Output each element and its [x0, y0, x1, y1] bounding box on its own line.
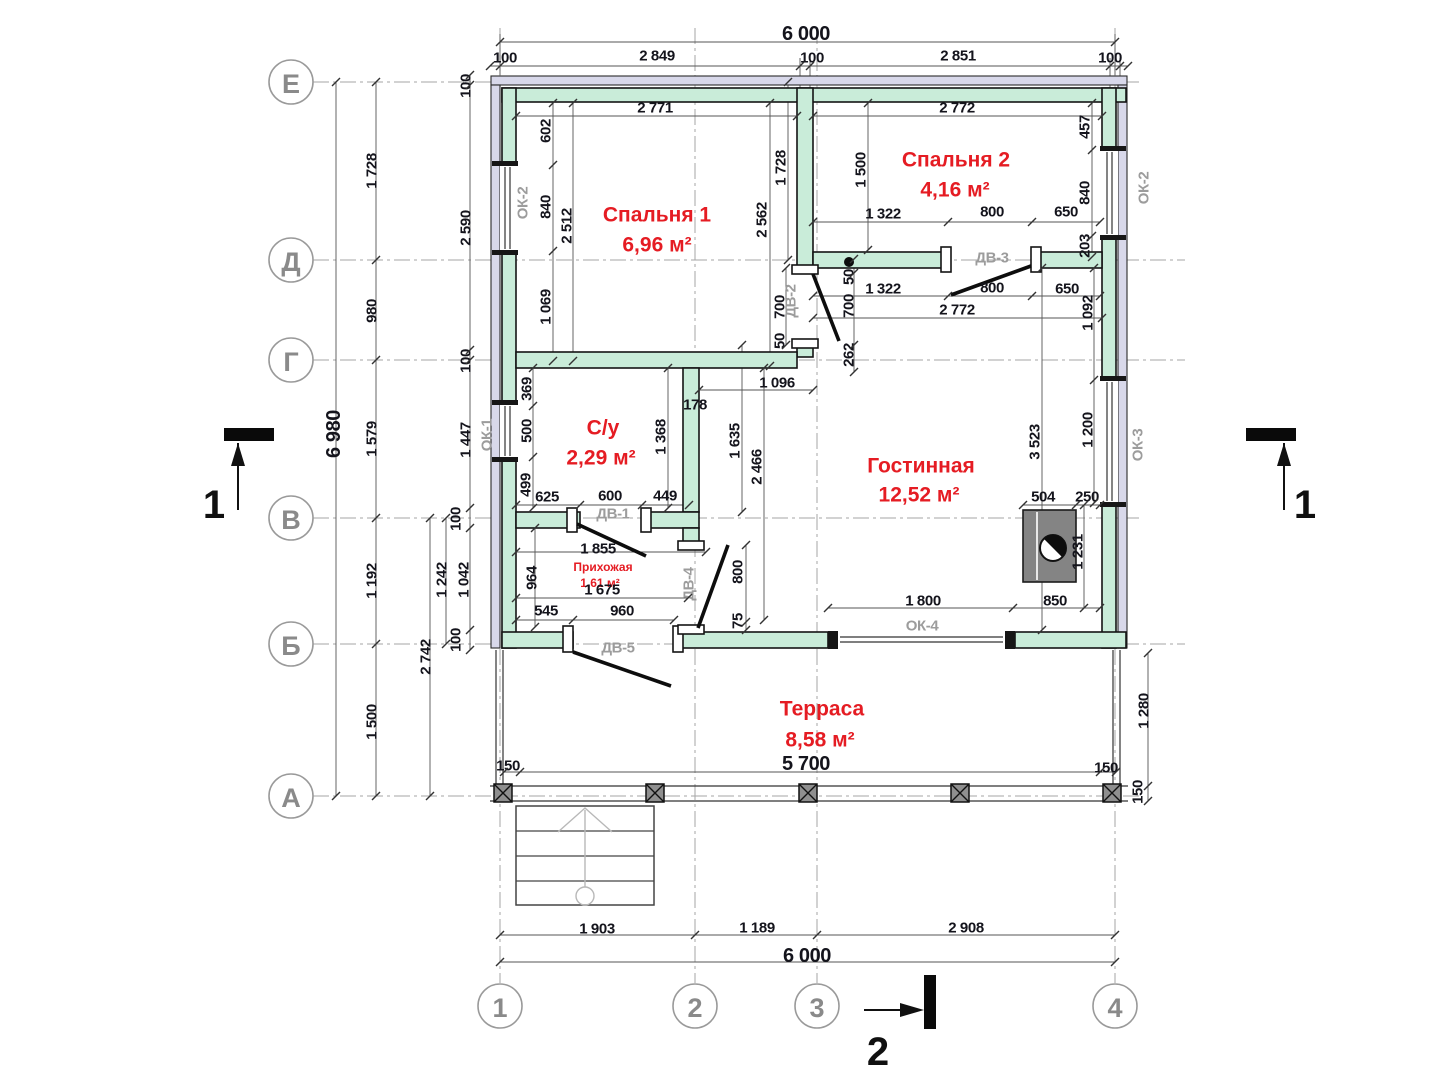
dimension-label: 2 908: [948, 920, 984, 937]
axis-col-1: 1: [478, 984, 522, 1028]
opening-label: ОК-1: [479, 419, 496, 452]
dimension-label: 369: [519, 377, 536, 401]
dimension-label: 650: [1055, 281, 1079, 298]
dimension-label: 1 635: [727, 423, 744, 459]
dimension-label: 1 042: [456, 562, 473, 598]
axis-row-label: Г: [283, 347, 298, 377]
opening-label: ОК-2: [515, 187, 532, 220]
dimension-label: 150: [1130, 780, 1147, 804]
dimension-label: 1 092: [1080, 295, 1097, 331]
terrace-posts: [494, 784, 1121, 802]
dimension-label: 1 192: [364, 563, 381, 599]
dimension-label: 178: [683, 397, 707, 414]
wall-middle-upper: [797, 88, 813, 273]
dimension-label: 100: [458, 349, 475, 373]
floor-plan-canvas: Е Д Г В Б А 1 2 3 4 1 1 2 Спальня 1 6,96…: [0, 0, 1440, 1080]
entry-stairs: [516, 806, 654, 905]
section-1-right-number: 1: [1294, 483, 1316, 527]
dimension-label: 1 189: [739, 920, 775, 937]
dimension-label: 1 231: [1070, 534, 1087, 570]
opening-label: ДВ-1: [596, 506, 629, 523]
dimension-label: 1 096: [759, 375, 795, 392]
room-name-livingroom: Гостинная: [867, 455, 975, 478]
room-area-livingroom: 12,52 м²: [879, 484, 960, 507]
dimension-label: 1 447: [458, 422, 475, 458]
dimension-label: 2 742: [418, 639, 435, 675]
dimension-label: 1 322: [865, 206, 901, 223]
dimension-label: 2 512: [559, 208, 576, 244]
dimension-label: 449: [653, 488, 677, 505]
dimension-label: 499: [518, 473, 535, 497]
dimension-label: 960: [610, 603, 634, 620]
wall-node-dot: [844, 257, 854, 267]
axis-row-d: Д: [269, 238, 313, 282]
dimension-label: 2 849: [639, 48, 675, 65]
stove: [1023, 510, 1076, 582]
dimension-label: 75: [730, 613, 747, 629]
axis-row-label: Е: [282, 69, 300, 99]
wall-su-right: [683, 368, 699, 512]
dimension-label: 850: [1043, 593, 1067, 610]
room-name-hallway: Прихожая: [573, 560, 632, 574]
dimension-label: 6 000: [782, 23, 830, 45]
dimension-label: 2 590: [458, 210, 475, 246]
dimension-label: 1 500: [364, 704, 381, 740]
dimension-label: 1 579: [364, 421, 381, 457]
opening-label: ОК-4: [906, 618, 940, 635]
dimension-label: 100: [458, 74, 475, 98]
dimension-label: 2 466: [749, 449, 766, 485]
dimension-label: 650: [1054, 204, 1078, 221]
dimension-label: 625: [535, 489, 559, 506]
room-name-terrace: Терраса: [780, 698, 865, 721]
dimension-label: 100: [448, 628, 465, 652]
section-1-left-mark: [224, 428, 274, 510]
dimension-label: 2 771: [637, 100, 673, 117]
dimension-label: 1 728: [364, 153, 381, 189]
room-area-terrace: 8,58 м²: [785, 729, 854, 752]
wall-g: [516, 352, 797, 368]
room-area-bedroom1: 6,96 м²: [622, 234, 691, 257]
dimension-label: 1 855: [580, 541, 616, 558]
axis-grid-lines: [313, 28, 1185, 983]
dimension-label: 1 903: [579, 921, 615, 938]
axis-row-v: В: [269, 496, 313, 540]
dimension-label: 964: [524, 565, 541, 590]
dimension-label: 2 772: [939, 302, 975, 319]
axis-row-label: Б: [281, 631, 300, 661]
dimension-label: 500: [519, 419, 536, 443]
wall-d-seg1: [813, 252, 948, 268]
dimension-label: 800: [980, 204, 1004, 221]
floor-plan-drawing: Е Д Г В Б А 1 2 3 4 1 1 2 Спальня 1 6,96…: [0, 0, 1440, 1080]
dimension-label: 100: [493, 50, 517, 67]
room-name-bedroom2: Спальня 2: [902, 149, 1010, 172]
wall-bottom-seg3: [1015, 632, 1126, 648]
dimension-label: 6 000: [783, 945, 831, 967]
axis-col-label: 2: [687, 993, 702, 1023]
axis-col-3: 3: [795, 984, 839, 1028]
dimension-label: 100: [448, 507, 465, 531]
section-1-left-number: 1: [203, 483, 225, 527]
room-area-bedroom2: 4,16 м²: [920, 179, 989, 202]
dimension-label: 1 728: [773, 150, 790, 186]
axis-row-b: Б: [269, 622, 313, 666]
dimension-label: 840: [538, 195, 555, 219]
opening-label: ОК-2: [1136, 172, 1153, 205]
dimension-label: 600: [598, 488, 622, 505]
opening-label: ДВ-3: [975, 250, 1008, 267]
dimension-label: 100: [1098, 50, 1122, 67]
dimension-label: 50: [772, 333, 789, 349]
dimension-label: 840: [1077, 181, 1094, 205]
axis-row-label: В: [281, 505, 301, 535]
axis-col-label: 1: [492, 993, 507, 1023]
dimension-label: 980: [364, 299, 381, 323]
dimension-label: 262: [841, 343, 858, 367]
dimension-lines: [336, 34, 1148, 962]
dimension-label: 1 675: [584, 582, 620, 599]
axis-row-e: Е: [269, 60, 313, 104]
dimension-label: 1 368: [653, 419, 670, 455]
wall-top: [502, 88, 1126, 102]
axis-col-4: 4: [1093, 984, 1137, 1028]
axis-col-2: 2: [673, 984, 717, 1028]
dimension-label: 6 980: [323, 410, 345, 458]
room-name-bathroom: С/у: [587, 417, 620, 440]
terrace-deck: [490, 650, 1128, 802]
opening-label: ОК-3: [1130, 429, 1147, 462]
dimension-label: 1 242: [434, 562, 451, 598]
axis-row-a: А: [269, 774, 313, 818]
dimension-label: 457: [1077, 115, 1094, 139]
axis-row-label: А: [281, 783, 301, 813]
dimension-label: 1 800: [905, 593, 941, 610]
dimension-label: 504: [1031, 489, 1056, 506]
axis-row-label: Д: [281, 247, 300, 277]
dimension-label: 545: [534, 603, 558, 620]
dimension-label: 5 700: [782, 753, 830, 775]
section-2-number: 2: [867, 1030, 889, 1074]
axis-row-g: Г: [269, 338, 313, 382]
opening-label: ДВ-5: [601, 640, 634, 657]
dimension-label: 1 280: [1136, 693, 1153, 729]
dimension-label: 2 562: [754, 202, 771, 238]
dimension-label: 150: [496, 758, 520, 775]
dimension-label: 700: [841, 294, 858, 318]
room-name-bedroom1: Спальня 1: [603, 204, 712, 227]
dimension-label: 2 851: [940, 48, 976, 65]
dimension-label: 3 523: [1027, 424, 1044, 460]
opening-label: ДВ-4: [681, 566, 698, 600]
dimension-label: 1 069: [538, 289, 555, 325]
dimension-label: 2 772: [939, 100, 975, 117]
axis-col-label: 4: [1107, 993, 1122, 1023]
dimension-label: 800: [730, 560, 747, 584]
section-2-bottom-mark: [864, 975, 936, 1029]
room-area-bathroom: 2,29 м²: [566, 447, 635, 470]
dimension-label: 1 200: [1080, 412, 1097, 448]
dimension-label: 602: [538, 119, 555, 143]
dimension-label: 800: [980, 280, 1004, 297]
dimension-label: 1 322: [865, 281, 901, 298]
section-1-right-mark: [1246, 428, 1296, 510]
axis-col-label: 3: [809, 993, 824, 1023]
opening-label: ДВ-2: [783, 284, 800, 317]
dimension-label: 1 500: [853, 152, 870, 188]
